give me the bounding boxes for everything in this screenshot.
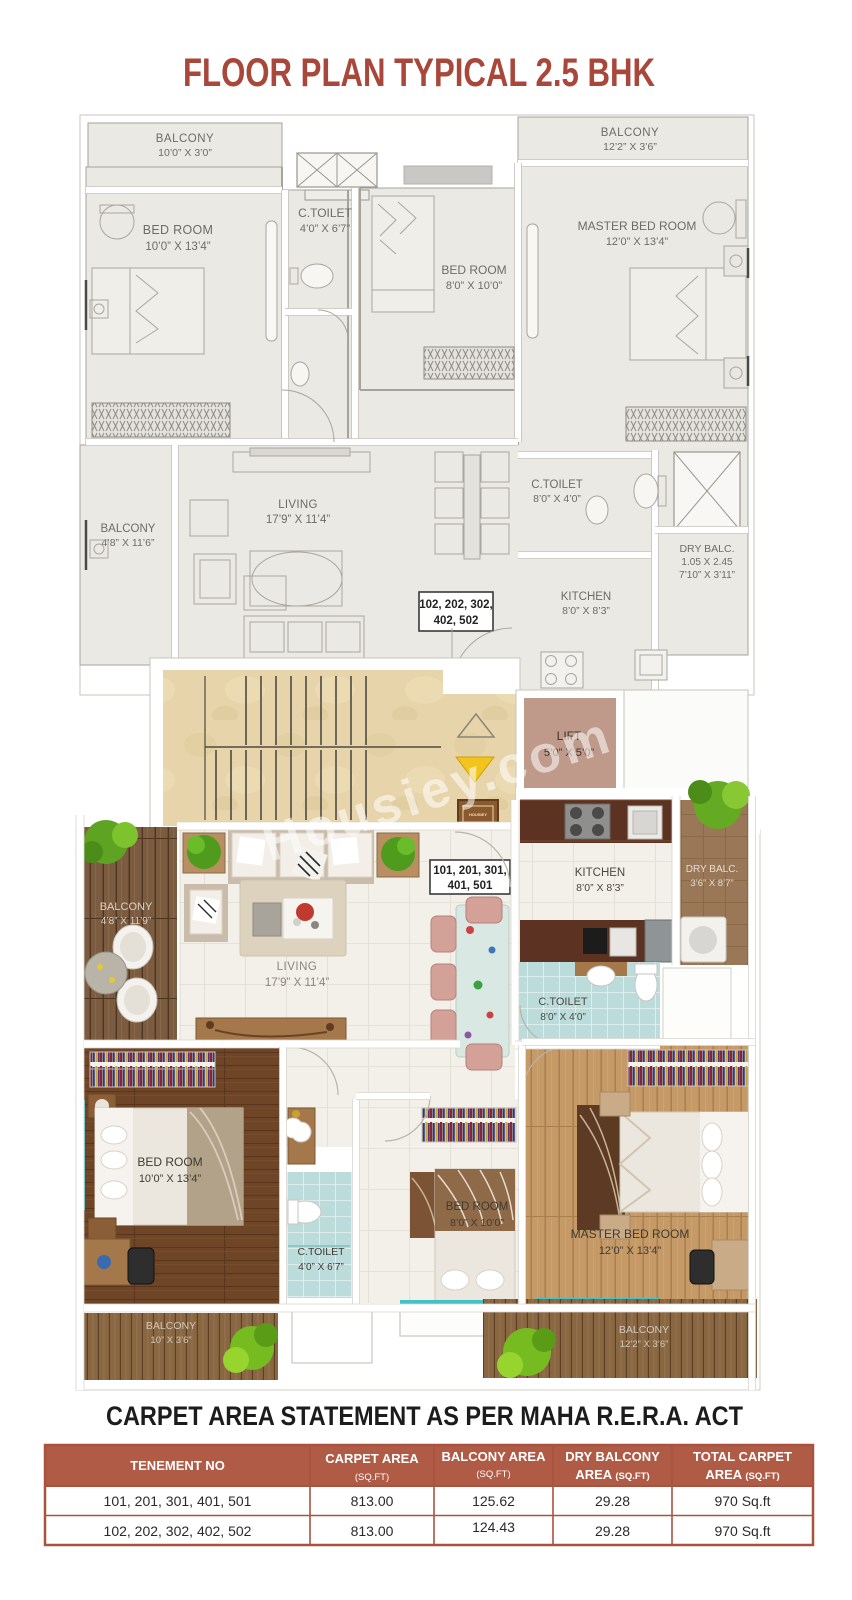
svg-text:C.TOILET: C.TOILET: [538, 996, 588, 1008]
svg-text:BED ROOM: BED ROOM: [441, 263, 506, 277]
svg-text:29.28: 29.28: [595, 1493, 630, 1509]
svg-text:BALCONY: BALCONY: [101, 523, 156, 535]
svg-text:17’9” X 11’4”: 17’9” X 11’4”: [266, 514, 331, 526]
svg-text:LIVING: LIVING: [278, 499, 318, 511]
svg-text:BALCONY: BALCONY: [601, 127, 659, 139]
svg-text:8’0” X 10’0”: 8’0” X 10’0”: [446, 280, 503, 292]
svg-text:BED ROOM: BED ROOM: [446, 1201, 509, 1213]
svg-text:7’10” X 3’11”: 7’10” X 3’11”: [679, 570, 735, 581]
svg-text:C.TOILET: C.TOILET: [298, 206, 352, 220]
svg-text:813.00: 813.00: [351, 1523, 394, 1539]
svg-text:DRY BALC.: DRY BALC.: [679, 543, 734, 555]
svg-text:970 Sq.ft: 970 Sq.ft: [714, 1523, 770, 1539]
svg-text:4’8” X 11’9”: 4’8” X 11’9”: [101, 916, 151, 927]
svg-text:BALCONY: BALCONY: [156, 133, 214, 145]
svg-text:10” X 3’6”: 10” X 3’6”: [150, 1335, 191, 1346]
svg-text:10’0” X 13’4”: 10’0” X 13’4”: [139, 1173, 202, 1185]
svg-text:BED ROOM: BED ROOM: [137, 1155, 202, 1169]
svg-text:BALCONY AREA: BALCONY AREA: [441, 1449, 546, 1464]
svg-text:12’0” X 13’4”: 12’0” X 13’4”: [599, 1245, 662, 1257]
svg-text:12’2” X 3’6”: 12’2” X 3’6”: [603, 141, 657, 153]
svg-text:17’9” X 11’4”: 17’9” X 11’4”: [265, 977, 330, 989]
svg-text:TOTAL CARPET: TOTAL CARPET: [693, 1449, 792, 1464]
svg-text:1.05 X 2.45: 1.05 X 2.45: [681, 557, 733, 568]
svg-text:KITCHEN: KITCHEN: [561, 591, 611, 603]
svg-text:LIVING: LIVING: [277, 961, 318, 973]
svg-text:8’0” X 10’0”: 8’0” X 10’0”: [450, 1217, 504, 1229]
svg-text:8’0” X 8’3”: 8’0” X 8’3”: [576, 882, 624, 894]
svg-text:970 Sq.ft: 970 Sq.ft: [714, 1493, 770, 1509]
svg-text:8’0” X 8’3”: 8’0” X 8’3”: [562, 605, 610, 617]
svg-text:10’0” X 13’4”: 10’0” X 13’4”: [145, 241, 210, 253]
svg-text:4’0” X 6’7”: 4’0” X 6’7”: [300, 223, 350, 235]
svg-text:KITCHEN: KITCHEN: [575, 867, 625, 879]
svg-text:CARPET AREA STATEMENT AS PER M: CARPET AREA STATEMENT AS PER MAHA R.E.R.…: [106, 1401, 743, 1431]
svg-text:101, 201, 301,: 101, 201, 301,: [433, 865, 507, 877]
svg-text:FLOOR PLAN TYPICAL 2.5 BHK: FLOOR PLAN TYPICAL 2.5 BHK: [183, 51, 655, 95]
svg-text:BALCONY: BALCONY: [146, 1320, 196, 1332]
svg-text:813.00: 813.00: [351, 1493, 394, 1509]
svg-text:102, 202, 302,: 102, 202, 302,: [419, 599, 493, 611]
svg-text:HOUSIEY: HOUSIEY: [469, 812, 487, 817]
svg-text:MASTER BED ROOM: MASTER BED ROOM: [571, 1227, 690, 1241]
svg-text:TENEMENT NO: TENEMENT NO: [130, 1458, 225, 1473]
svg-text:MASTER BED ROOM: MASTER BED ROOM: [578, 219, 697, 233]
svg-text:4’0” X 6’7”: 4’0” X 6’7”: [298, 1262, 344, 1273]
svg-text:8’0” X 4’0”: 8’0” X 4’0”: [533, 493, 581, 505]
svg-text:12’0” X 13’4”: 12’0” X 13’4”: [606, 236, 669, 248]
svg-text:401, 501: 401, 501: [448, 880, 493, 892]
svg-text:8’0” X 4’0”: 8’0” X 4’0”: [540, 1012, 586, 1023]
svg-text:402, 502: 402, 502: [434, 615, 479, 627]
svg-text:C.TOILET: C.TOILET: [297, 1246, 345, 1258]
svg-text:3’6” X 8’7”: 3’6” X 8’7”: [690, 878, 733, 889]
svg-text:(SQ.FT): (SQ.FT): [355, 1472, 389, 1483]
svg-text:29.28: 29.28: [595, 1523, 630, 1539]
svg-text:DRY BALC.: DRY BALC.: [686, 864, 738, 875]
svg-text:124.43: 124.43: [472, 1519, 515, 1535]
svg-text:CARPET AREA: CARPET AREA: [325, 1451, 419, 1466]
svg-text:102, 202, 302, 402, 502: 102, 202, 302, 402, 502: [104, 1523, 252, 1539]
svg-text:4’8” X 11’6”: 4’8” X 11’6”: [102, 537, 155, 549]
svg-text:BALCONY: BALCONY: [100, 901, 153, 913]
svg-text:(SQ.FT): (SQ.FT): [476, 1469, 510, 1480]
svg-text:12’2” X 3’6”: 12’2” X 3’6”: [620, 1339, 669, 1350]
svg-text:101, 201, 301, 401, 501: 101, 201, 301, 401, 501: [104, 1493, 252, 1509]
svg-text:125.62: 125.62: [472, 1493, 515, 1509]
svg-text:BED ROOM: BED ROOM: [143, 223, 213, 237]
svg-text:10’0” X 3’0”: 10’0” X 3’0”: [158, 147, 212, 159]
svg-text:DRY BALCONY: DRY BALCONY: [565, 1449, 660, 1464]
svg-text:C.TOILET: C.TOILET: [531, 479, 583, 491]
svg-text:BALCONY: BALCONY: [619, 1324, 669, 1336]
